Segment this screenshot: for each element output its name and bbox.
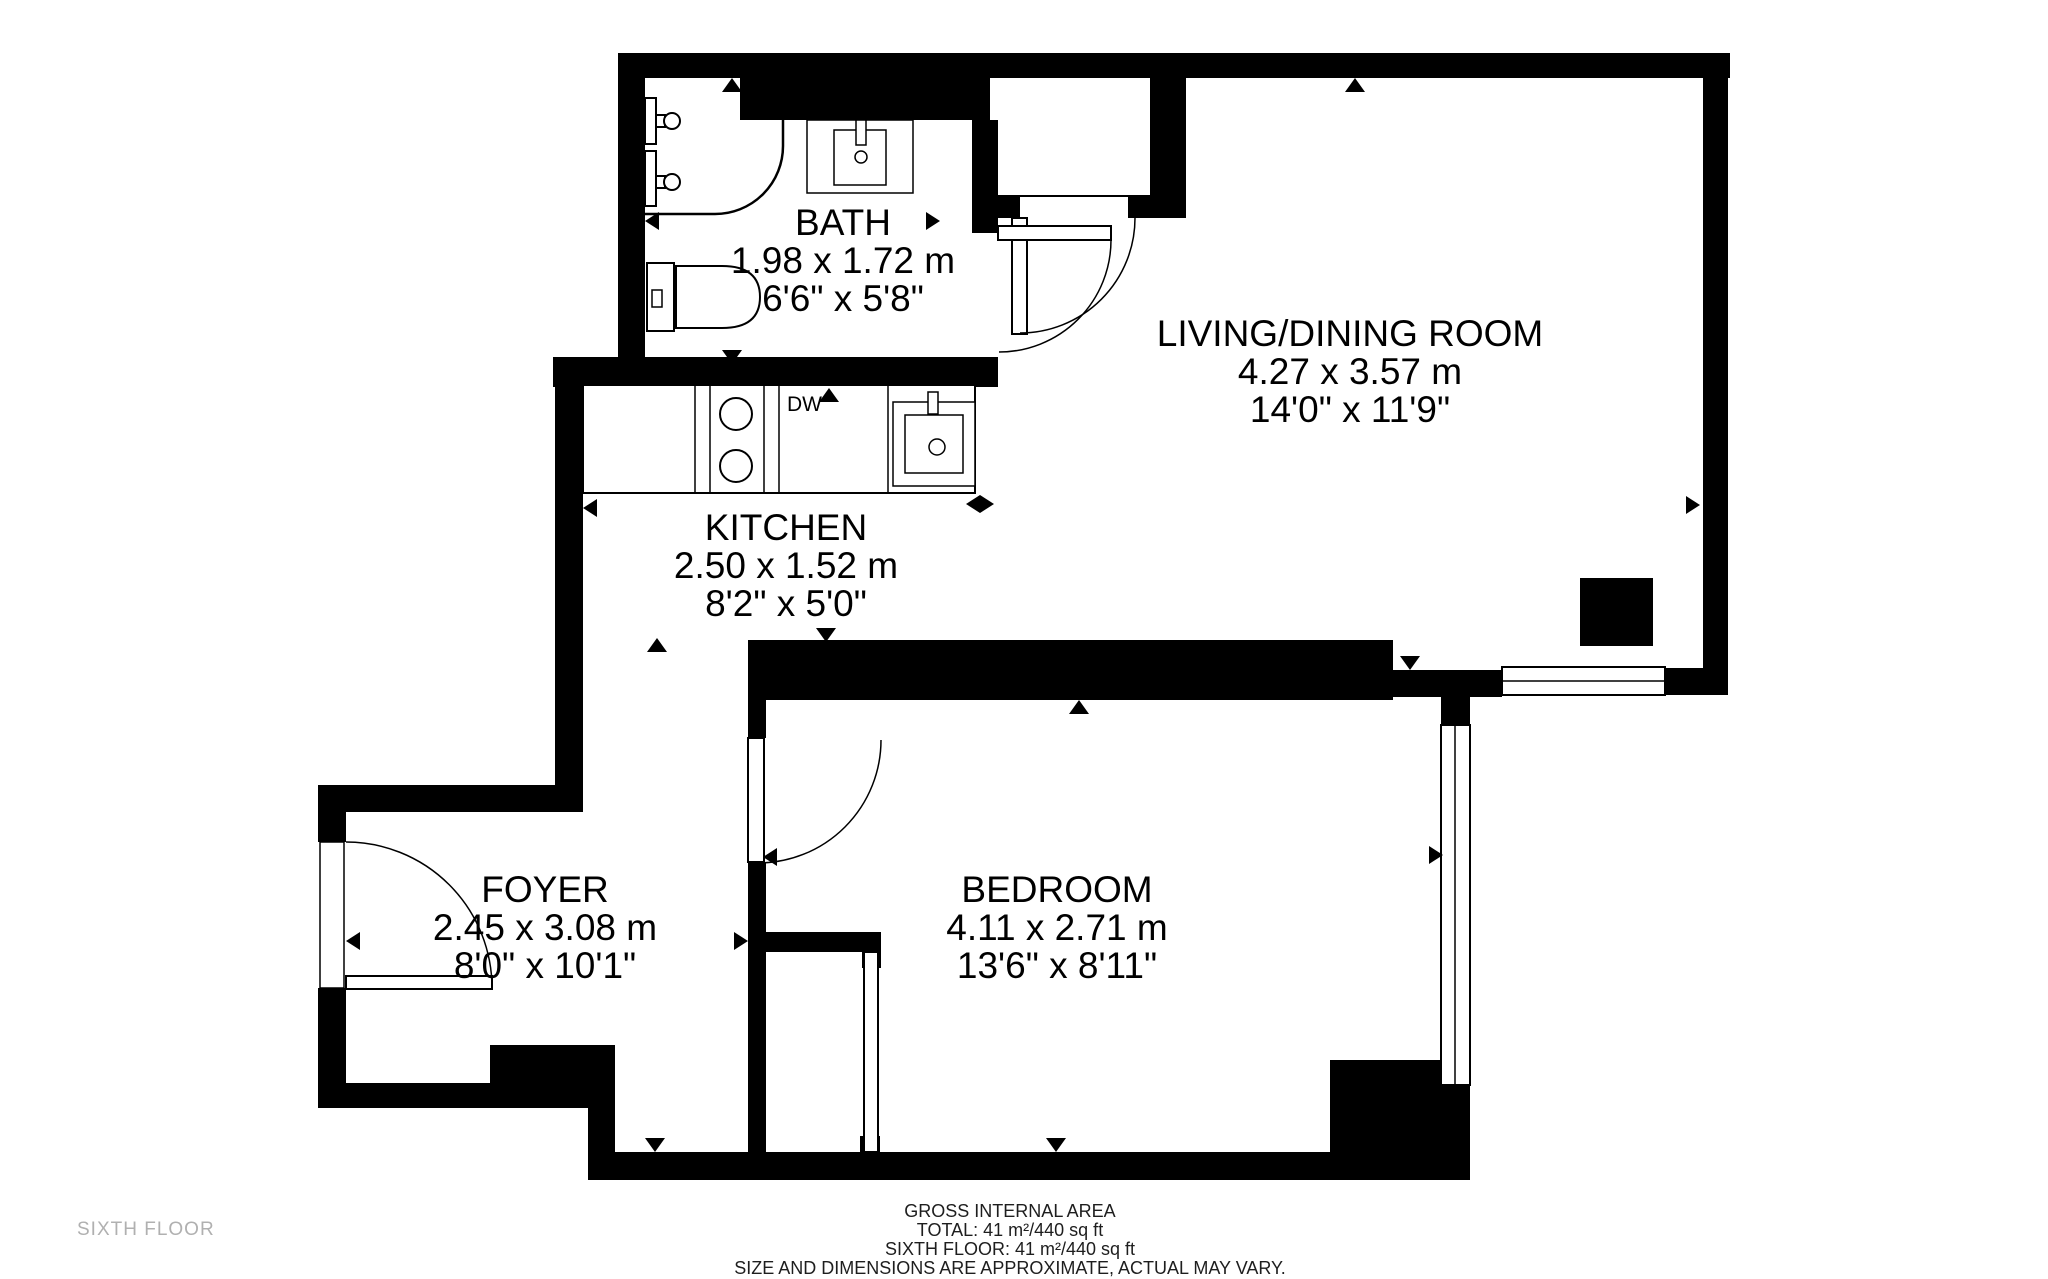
dimension-arrow <box>966 495 980 513</box>
room-name: BEDROOM <box>946 871 1167 909</box>
window <box>1441 725 1470 1085</box>
dimension-arrow <box>583 499 597 517</box>
room-name: FOYER <box>433 871 657 909</box>
kitchen-sink <box>893 392 975 486</box>
dimension-arrow <box>645 1138 665 1152</box>
bath-sink <box>807 120 913 193</box>
floor-plan: BATH 1.98 x 1.72 m 6'6" x 5'8" KITCHEN 2… <box>0 0 2048 1279</box>
closet-partition <box>864 952 878 1152</box>
room-dim-metric: 1.98 x 1.72 m <box>731 242 955 280</box>
shower-valve-icon <box>645 151 680 206</box>
dimension-arrow <box>816 628 836 642</box>
room-dim-metric: 2.45 x 3.08 m <box>433 909 657 947</box>
room-name: KITCHEN <box>674 509 898 547</box>
dishwasher-label: DW <box>787 393 822 417</box>
room-label-living: LIVING/DINING ROOM 4.27 x 3.57 m 14'0" x… <box>1157 315 1543 429</box>
room-dim-metric: 4.27 x 3.57 m <box>1157 353 1543 391</box>
dimension-arrow <box>734 932 748 950</box>
footer-total: TOTAL: 41 m²/440 sq ft <box>734 1221 1286 1240</box>
room-label-bedroom: BEDROOM 4.11 x 2.71 m 13'6" x 8'11" <box>946 871 1167 985</box>
room-dim-imperial: 6'6" x 5'8" <box>731 280 955 318</box>
dimension-arrow <box>1400 656 1420 670</box>
room-dim-imperial: 14'0" x 11'9" <box>1157 391 1543 429</box>
dimension-arrow <box>1345 78 1365 92</box>
footer-note: GROSS INTERNAL AREA TOTAL: 41 m²/440 sq … <box>734 1202 1286 1278</box>
dimension-arrow <box>722 78 742 92</box>
room-dim-metric: 4.11 x 2.71 m <box>946 909 1167 947</box>
room-dim-metric: 2.50 x 1.52 m <box>674 547 898 585</box>
dimension-arrow <box>1069 700 1089 714</box>
room-label-bath: BATH 1.98 x 1.72 m 6'6" x 5'8" <box>731 204 955 318</box>
footer-floor-total: SIXTH FLOOR: 41 m²/440 sq ft <box>734 1240 1286 1259</box>
room-label-foyer: FOYER 2.45 x 3.08 m 8'0" x 10'1" <box>433 871 657 985</box>
room-dim-imperial: 8'2" x 5'0" <box>674 585 898 623</box>
shower-valve-icon <box>645 98 680 144</box>
floor-label: SIXTH FLOOR <box>77 1219 215 1241</box>
dimension-arrow <box>1686 496 1700 514</box>
dimension-arrow <box>346 932 360 950</box>
plan-linework <box>0 0 2048 1279</box>
room-label-kitchen: KITCHEN 2.50 x 1.52 m 8'2" x 5'0" <box>674 509 898 623</box>
footer-disclaimer: SIZE AND DIMENSIONS ARE APPROXIMATE, ACT… <box>734 1259 1286 1278</box>
dimension-arrow <box>722 350 742 364</box>
shower <box>645 78 783 214</box>
window <box>1502 667 1665 695</box>
room-name: LIVING/DINING ROOM <box>1157 315 1543 353</box>
bedroom-door <box>748 738 881 863</box>
footer-title: GROSS INTERNAL AREA <box>734 1202 1286 1221</box>
room-dim-imperial: 8'0" x 10'1" <box>433 947 657 985</box>
room-dim-imperial: 13'6" x 8'11" <box>946 947 1167 985</box>
room-name: BATH <box>731 204 955 242</box>
dimension-arrow <box>647 638 667 652</box>
dimension-arrow <box>1046 1138 1066 1152</box>
dimension-arrow <box>980 495 994 513</box>
